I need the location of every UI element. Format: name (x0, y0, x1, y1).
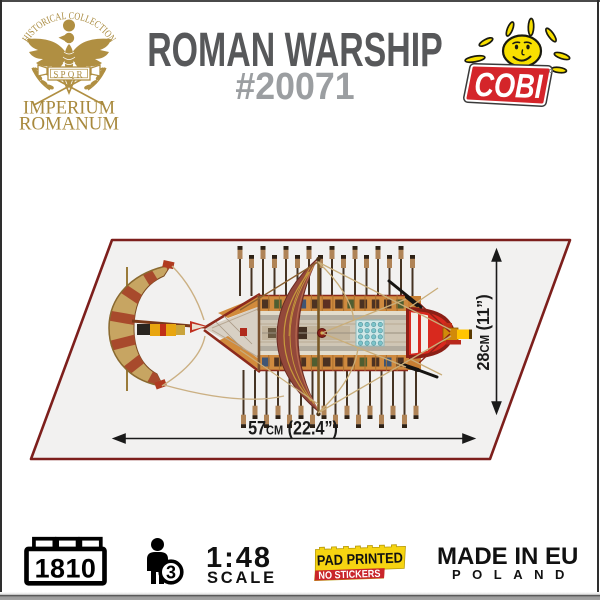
svg-text:3: 3 (166, 563, 176, 583)
svg-text:28cm (11”): 28cm (11”) (472, 294, 493, 370)
svg-text:57cm (22.4”): 57cm (22.4”) (248, 417, 338, 439)
svg-text:PAD PRINTED: PAD PRINTED (317, 550, 404, 569)
svg-text:NO STICKERS: NO STICKERS (318, 568, 380, 582)
svg-text:1810: 1810 (35, 553, 97, 583)
